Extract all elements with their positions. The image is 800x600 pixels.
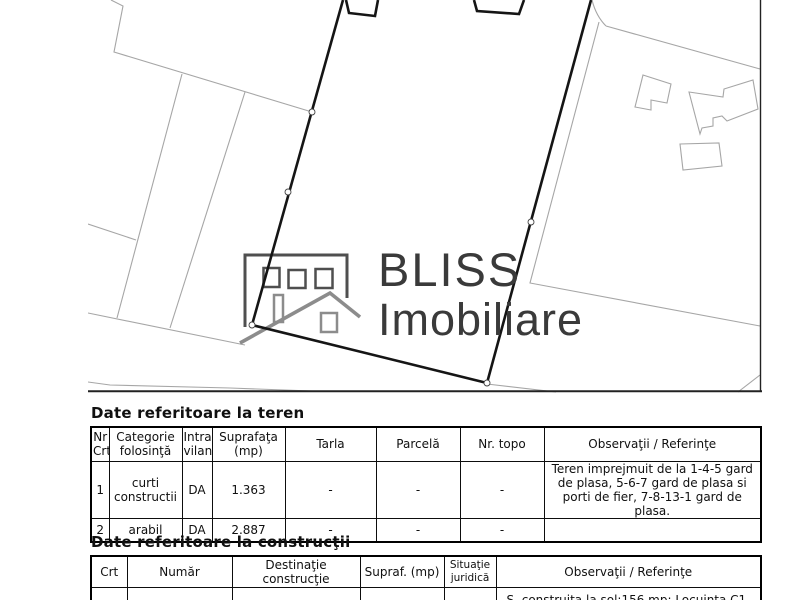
cell-numar [127,587,232,600]
parcel-line [111,0,312,112]
constructii-table: Crt Număr Destinaţie construcţie Supraf.… [90,555,762,600]
cell-tarla: - [285,461,376,519]
parcel-line [88,313,245,345]
watermark-brand-subname: Imobiliare [378,297,583,342]
cell-nr: 1 [91,461,109,519]
teren-row-1: 1 curti constructii DA 1.363 - - - Teren… [91,461,761,519]
teren-header-row: Nr Crt Categorie folosinţă Intra vilan S… [91,427,761,461]
col-header-numar: Număr [127,556,232,587]
boundary-point [484,380,490,386]
constructii-row-1: constructii de S. construita la sol:156 … [91,587,761,600]
cell-crt [91,587,127,600]
boundary-point [309,109,315,115]
parcel-line [88,224,136,240]
teren-title: Date referitoare la teren [91,404,762,422]
cell-observatii: Teren imprejmuit de la 1-4-5 gard de pla… [544,461,761,519]
boundary-left-side [252,0,343,325]
neighbor-building [689,80,758,134]
parcel-line [88,382,312,391]
constructii-header-row: Crt Număr Destinaţie construcţie Supraf.… [91,556,761,587]
property-building-2 [474,0,524,14]
cell-categorie: curti constructii [109,461,182,519]
parcel-line [530,22,760,326]
col-header-nr-crt: Nr Crt [91,427,109,461]
col-header-observatii: Observaţii / Referinţe [496,556,761,587]
cell-observatii: S. construita la sol:156 mp; Locuinta C1… [496,587,761,600]
teren-section: Date referitoare la teren Nr Crt Categor… [90,404,762,543]
logo-house-window [289,270,306,288]
parcel-line [606,26,760,69]
cell-destinatie: constructii de [232,587,360,600]
col-header-crt: Crt [91,556,127,587]
parcel-line [117,74,182,318]
parcel-line [738,375,760,392]
logo-house-window [316,269,333,288]
col-header-supraf: Supraf. (mp) [360,556,444,587]
property-building-1 [346,0,378,16]
neighbor-building [680,143,722,170]
cadastral-document-page: BLISS Imobiliare Date referitoare la ter… [0,0,800,600]
cell-situatie [444,587,496,600]
col-header-suprafata: Suprafaţa (mp) [212,427,285,461]
col-header-destinatie: Destinaţie construcţie [232,556,360,587]
logo-roof-window [321,313,337,332]
col-header-intravilan: Intra vilan [182,427,212,461]
col-header-nr-topo: Nr. topo [460,427,544,461]
cell-intravilan: DA [182,461,212,519]
watermark-brand-name: BLISS [378,246,521,293]
cell-nr-topo: - [460,461,544,519]
col-header-categorie: Categorie folosinţă [109,427,182,461]
constructii-section: Date referitoare la construcţii Crt Numă… [90,533,762,600]
col-header-tarla: Tarla [285,427,376,461]
cell-supraf [360,587,444,600]
cell-parcela: - [376,461,460,519]
boundary-point [285,189,291,195]
cell-suprafata: 1.363 [212,461,285,519]
col-header-observatii: Observaţii / Referinţe [544,427,761,461]
neighbor-buildings [635,75,758,170]
col-header-parcela: Parcelă [376,427,460,461]
teren-table: Nr Crt Categorie folosinţă Intra vilan S… [90,426,762,543]
col-header-situatie: Situaţie juridică [444,556,496,587]
parcel-line [170,92,245,328]
constructii-title: Date referitoare la construcţii [91,533,762,551]
boundary-point [528,219,534,225]
boundary-point [249,322,255,328]
neighbor-building [635,75,671,110]
